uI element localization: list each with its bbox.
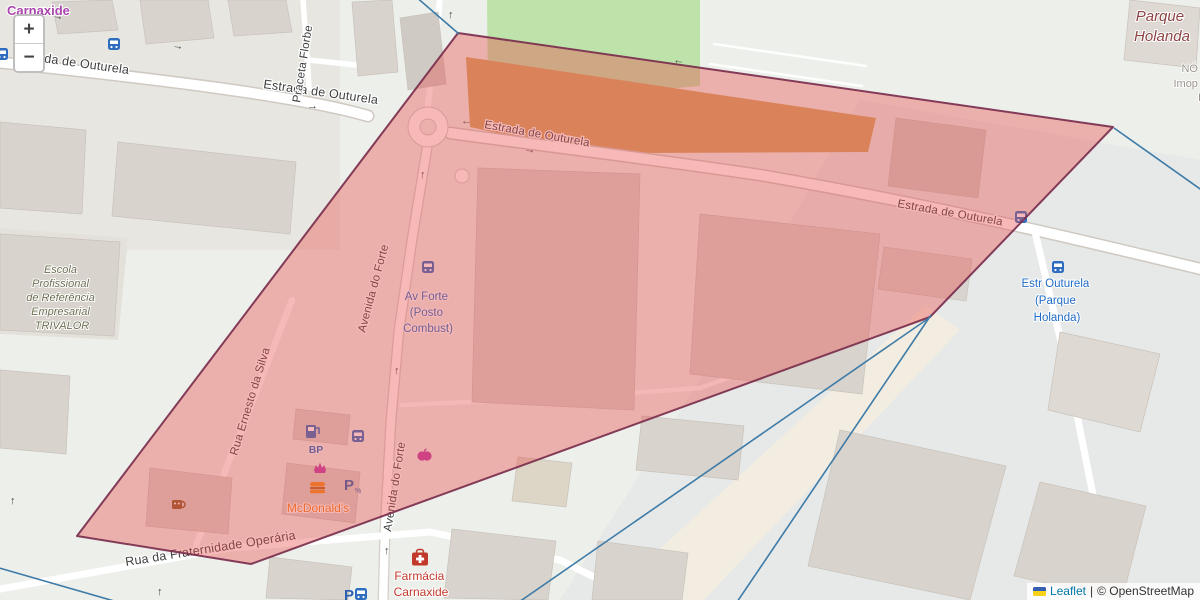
school-label-line: Escola	[44, 264, 77, 276]
suburb-label-line: Holanda	[1134, 28, 1190, 45]
school-label-line: Profissional	[32, 278, 89, 290]
partial-label-line: Imop	[1173, 78, 1197, 90]
bus-stop-icon	[355, 588, 367, 600]
osm-copyright: © OpenStreetMap	[1097, 584, 1194, 598]
ukraine-flag-icon	[1033, 587, 1046, 596]
map-canvas[interactable]: → → ← → ← → ↑ ↑ ↑ ↑ ↑ ↑ ← Estrada de Out…	[0, 0, 1200, 600]
pharmacy-label-line: Farmácia	[394, 569, 444, 583]
one-way-arrow-icon: ↑	[448, 9, 454, 21]
school-label-line: TRIVALOR	[35, 320, 89, 332]
school-label-line: de Referência	[26, 292, 95, 304]
bus-stop-icon	[0, 48, 8, 60]
leaflet-link[interactable]: Leaflet	[1050, 584, 1086, 598]
zoom-out-button[interactable]: −	[15, 43, 43, 71]
parking-icon: P	[344, 587, 354, 600]
pharmacy-icon	[412, 550, 428, 566]
attribution-separator: |	[1090, 584, 1093, 598]
one-way-arrow-icon: →	[171, 39, 184, 53]
partial-label-line: NÓ	[1181, 62, 1198, 75]
bus-stop-label-line: (Parque	[1035, 295, 1076, 307]
school-label-line: Empresarial	[31, 306, 90, 318]
one-way-arrow-icon: ↑	[10, 495, 16, 507]
bus-stop-icon	[1052, 261, 1064, 273]
one-way-arrow-icon: →	[307, 100, 318, 112]
bus-stop-label-line: Holanda)	[1034, 312, 1081, 324]
map-tiles-layer: → → ← → ← → ↑ ↑ ↑ ↑ ↑ ↑ ← Estrada de Out…	[0, 0, 1200, 600]
zoom-in-button[interactable]: +	[15, 16, 43, 43]
pharmacy-label: Farmácia Carnaxide	[394, 569, 449, 599]
bus-stop-label-line: Estr Outurela	[1022, 278, 1090, 290]
suburb-label-line: Parque	[1136, 8, 1184, 25]
pharmacy-label-line: Carnaxide	[394, 585, 449, 599]
one-way-arrow-icon: ↑	[384, 545, 390, 557]
attribution-bar: Leaflet | © OpenStreetMap	[1027, 583, 1200, 600]
one-way-arrow-icon: ↑	[157, 586, 163, 598]
partial-building-label: NÓ Imop I	[1173, 62, 1200, 104]
zoom-control: + −	[13, 14, 45, 73]
bus-stop-icon	[108, 38, 120, 50]
